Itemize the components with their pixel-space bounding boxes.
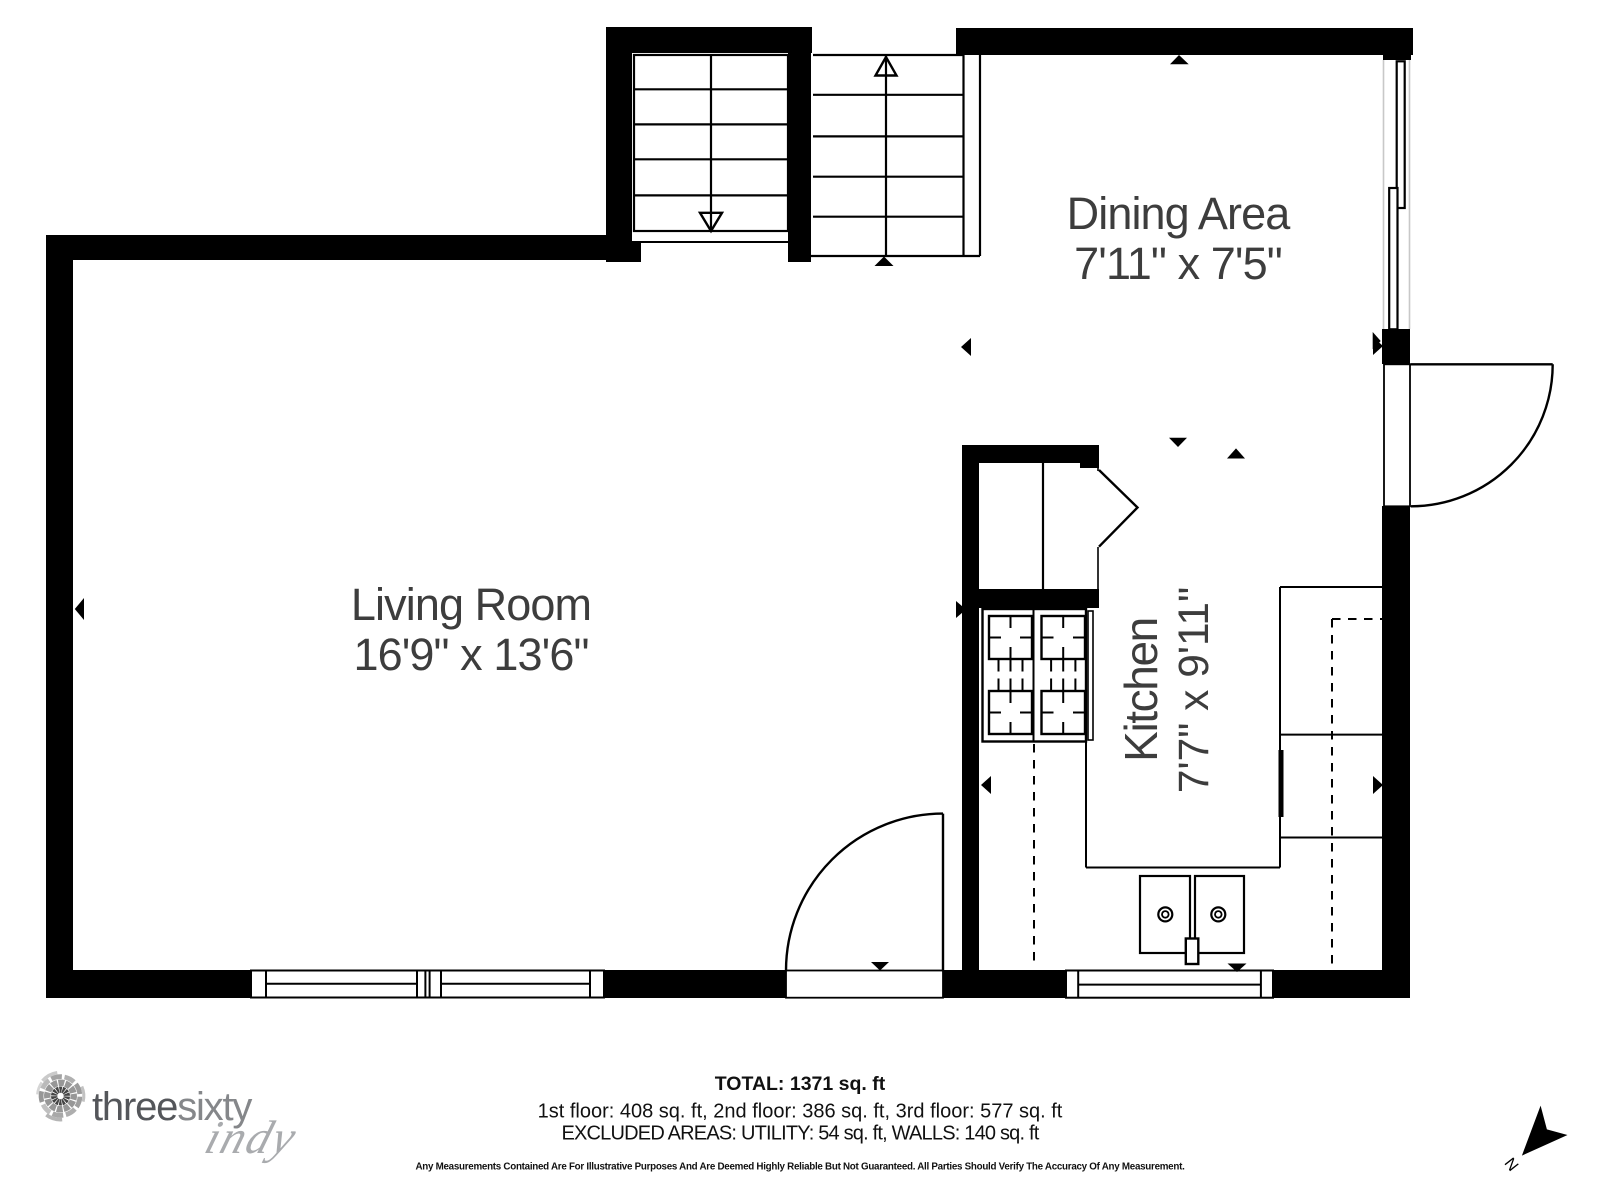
svg-text:Any Measurements Contained Are: Any Measurements Contained Are For Illus…: [415, 1161, 1185, 1172]
svg-text:7'7" x 9'11": 7'7" x 9'11": [1171, 587, 1218, 793]
svg-text:Living Room: Living Room: [351, 579, 591, 630]
svg-text:7'11" x 7'5": 7'11" x 7'5": [1074, 238, 1282, 289]
svg-text:Dining Area: Dining Area: [1067, 188, 1292, 239]
svg-text:EXCLUDED AREAS: UTILITY: 54 sq: EXCLUDED AREAS: UTILITY: 54 sq. ft, WALL…: [561, 1123, 1039, 1145]
svg-text:indy: indy: [199, 1112, 304, 1164]
svg-text:Kitchen: Kitchen: [1115, 618, 1167, 762]
svg-text:16'9" x 13'6": 16'9" x 13'6": [353, 629, 588, 680]
svg-text:TOTAL: 1371 sq. ft: TOTAL: 1371 sq. ft: [715, 1073, 886, 1095]
svg-text:1st floor: 408 sq. ft, 2nd flo: 1st floor: 408 sq. ft, 2nd floor: 386 sq…: [538, 1101, 1063, 1123]
